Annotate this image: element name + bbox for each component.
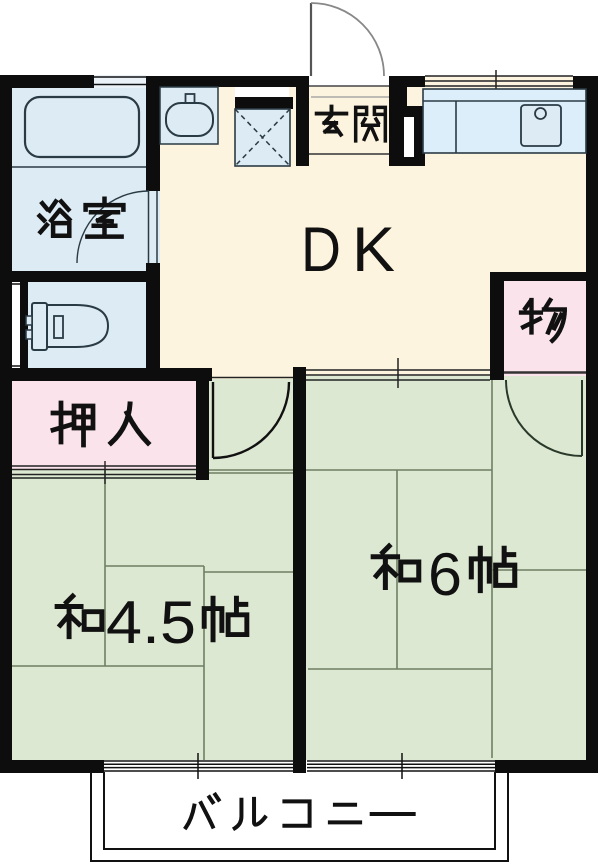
svg-text:4.5: 4.5 — [106, 589, 196, 656]
svg-text:K: K — [352, 215, 395, 285]
svg-text:6: 6 — [428, 541, 462, 608]
svg-text:D: D — [301, 215, 341, 285]
